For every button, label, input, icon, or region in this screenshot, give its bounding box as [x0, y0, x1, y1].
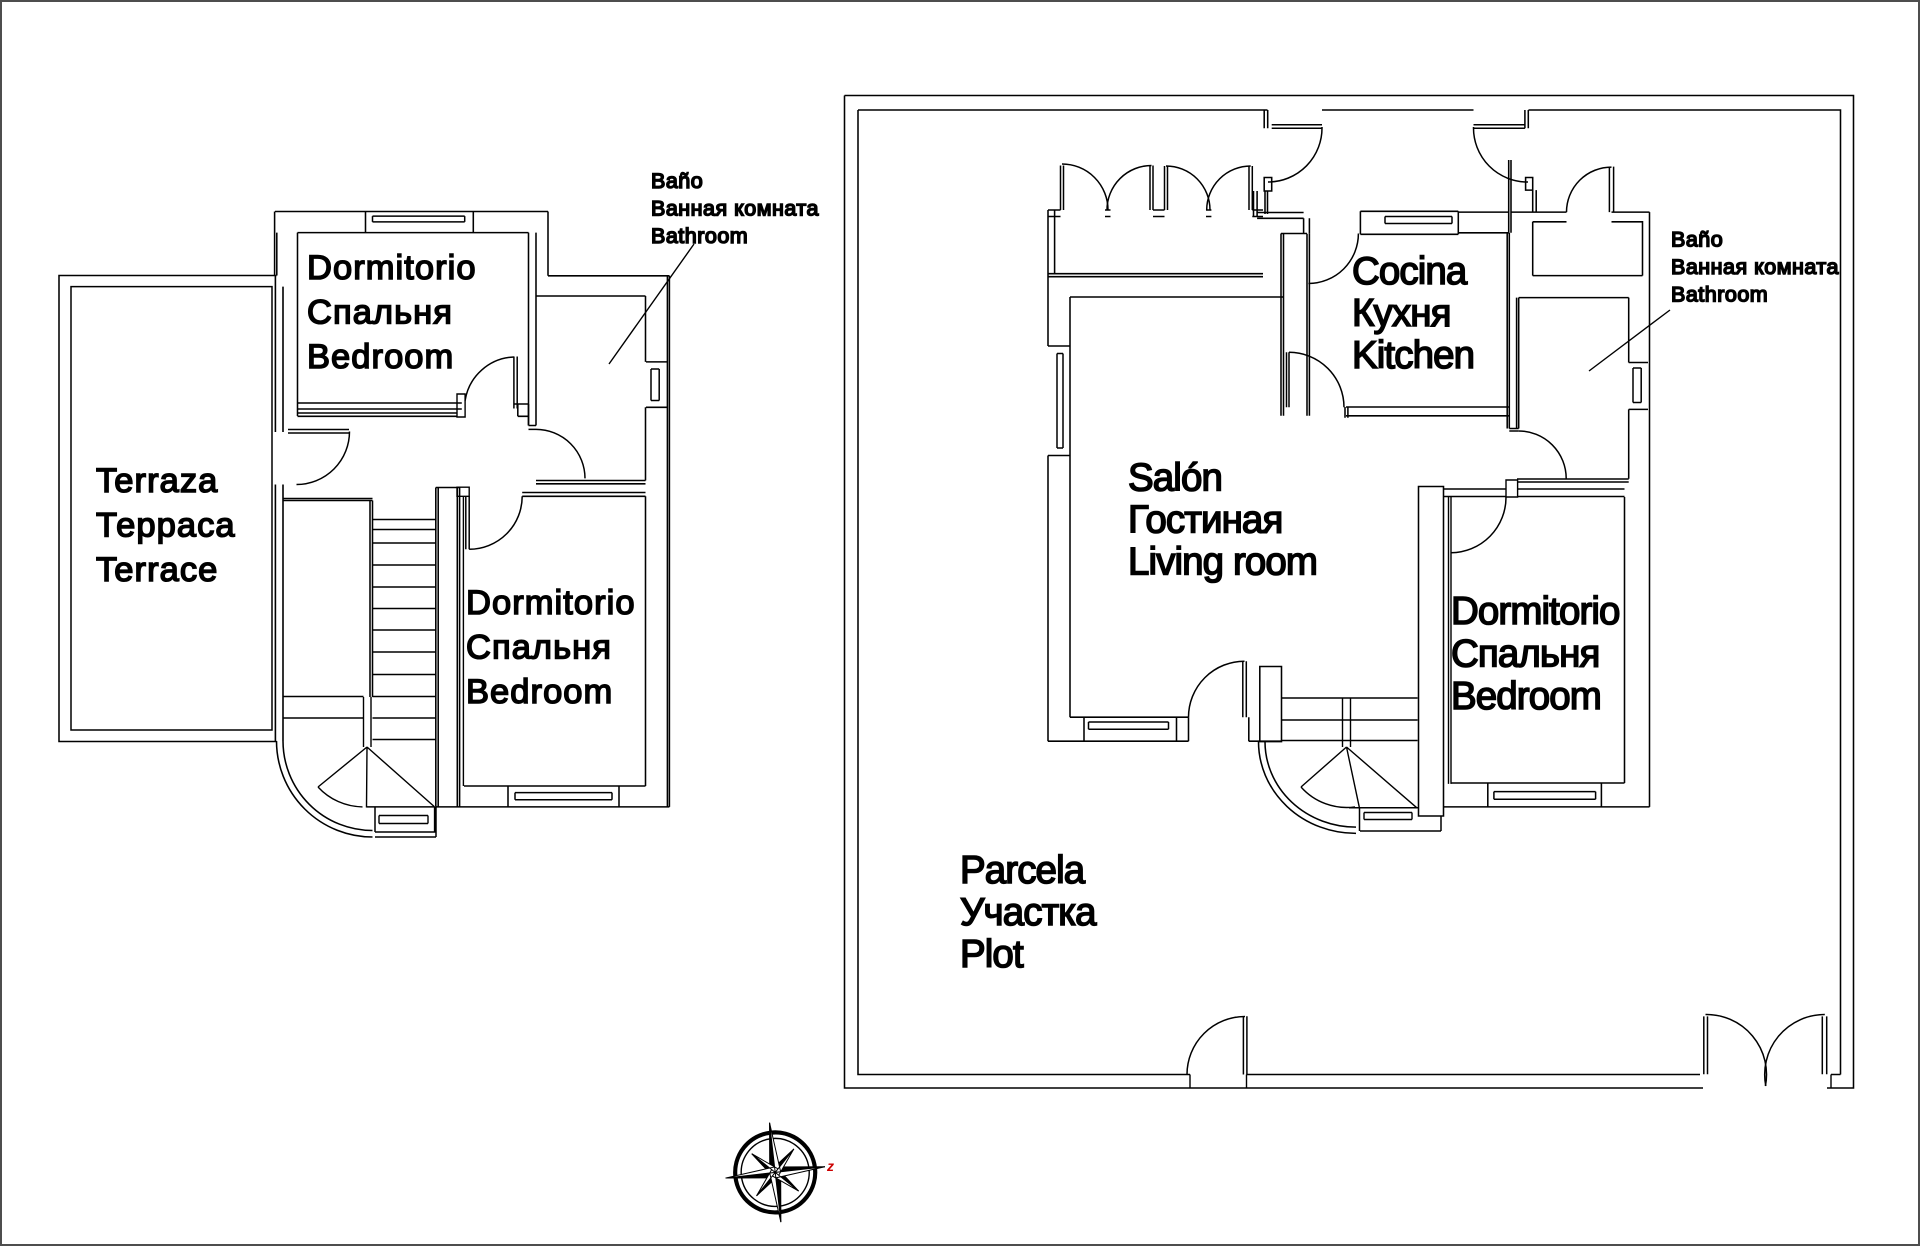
- svg-text:Спальня: Спальня: [1451, 633, 1599, 676]
- svg-text:Dormitorio: Dormitorio: [1451, 590, 1620, 633]
- svg-text:Bedroom: Bedroom: [1451, 675, 1601, 718]
- svg-text:Terrace: Terrace: [96, 551, 218, 589]
- svg-text:Salón: Salón: [1128, 457, 1222, 500]
- svg-text:Ванная комната: Ванная комната: [651, 197, 819, 221]
- svg-text:Parcela: Parcela: [960, 849, 1086, 892]
- svg-text:Plot: Plot: [960, 933, 1024, 976]
- svg-text:Bedroom: Bedroom: [307, 338, 454, 376]
- svg-text:Ванная комната: Ванная комната: [1671, 255, 1839, 279]
- svg-text:Cocina: Cocina: [1352, 250, 1468, 293]
- svg-text:Гостиная: Гостиная: [1128, 499, 1282, 542]
- svg-text:Baño: Baño: [651, 169, 703, 193]
- svg-text:Dormitorio: Dormitorio: [466, 584, 636, 622]
- svg-text:Terraza: Terraza: [96, 462, 218, 500]
- svg-text:Участка: Участка: [960, 891, 1097, 934]
- svg-text:Living room: Living room: [1128, 541, 1317, 584]
- svg-text:Kitchen: Kitchen: [1352, 334, 1474, 377]
- svg-text:Кухня: Кухня: [1352, 292, 1451, 335]
- svg-text:Спальня: Спальня: [466, 629, 612, 667]
- svg-text:Bathroom: Bathroom: [651, 224, 748, 248]
- svg-text:Dormitorio: Dormitorio: [307, 249, 477, 287]
- svg-text:Теppaca: Теppaca: [96, 507, 236, 545]
- svg-text:Bathroom: Bathroom: [1671, 283, 1768, 307]
- svg-text:Bedroom: Bedroom: [466, 673, 613, 711]
- svg-text:Спальня: Спальня: [307, 294, 453, 332]
- svg-text:Baño: Baño: [1671, 228, 1723, 252]
- svg-text:z: z: [826, 1158, 834, 1174]
